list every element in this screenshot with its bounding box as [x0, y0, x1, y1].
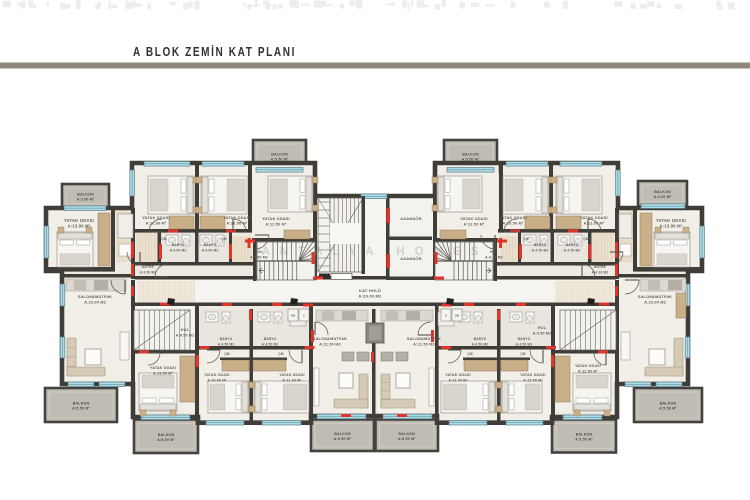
svg-text:A:21.50 M2: A:21.50 M2 — [319, 343, 341, 347]
svg-text:YATAK ODASI: YATAK ODASI — [499, 216, 526, 220]
svg-text:A:3.00 M²: A:3.00 M² — [654, 195, 672, 199]
svg-text:A:3.00 M²: A:3.00 M² — [77, 198, 95, 202]
svg-text:A:10.50 M²: A:10.50 M² — [227, 222, 249, 226]
svg-text:BALKON: BALKON — [398, 432, 415, 436]
svg-text:A:13.00 M²: A:13.00 M² — [660, 224, 683, 229]
svg-text:A:4.50 M2: A:4.50 M2 — [202, 249, 219, 253]
svg-text:A:5.50 M²: A:5.50 M² — [157, 438, 175, 442]
svg-text:BANYO: BANYO — [204, 243, 217, 247]
svg-text:HOL: HOL — [490, 250, 498, 254]
svg-text:HOL: HOL — [181, 328, 190, 332]
svg-text:A:11.00 M²: A:11.00 M² — [282, 379, 302, 383]
svg-text:A:11.00 M²: A:11.00 M² — [146, 222, 167, 226]
svg-text:BANYO: BANYO — [264, 337, 277, 341]
svg-text:A:4.50 M2: A:4.50 M2 — [262, 343, 279, 347]
svg-text:BANYO: BANYO — [220, 337, 233, 341]
svg-text:BALKON: BALKON — [158, 433, 175, 437]
svg-text:ÇM: ÇM — [583, 237, 589, 241]
svg-text:A:4.50 M2: A:4.50 M2 — [564, 249, 581, 253]
svg-text:A:23.00 M2: A:23.00 M2 — [644, 301, 666, 305]
svg-text:A:5.50 M²: A:5.50 M² — [659, 407, 677, 411]
svg-text:A:21.50 M2: A:21.50 M2 — [413, 343, 435, 347]
svg-text:A:13.00 M²: A:13.00 M² — [68, 224, 91, 229]
svg-text:A:4.50 M2: A:4.50 M2 — [170, 249, 187, 253]
svg-text:ÇM: ÇM — [520, 352, 526, 356]
svg-text:SM: SM — [291, 314, 295, 318]
svg-text:ÇM: ÇM — [224, 352, 230, 356]
svg-text:BALKON: BALKON — [462, 153, 479, 157]
svg-text:ÇM: ÇM — [523, 237, 529, 241]
svg-text:SM: SM — [455, 314, 459, 318]
svg-text:A:5.50 M²: A:5.50 M² — [334, 437, 352, 441]
svg-text:YATAK ODASI: YATAK ODASI — [580, 216, 607, 220]
svg-text:A:4.50 M2: A:4.50 M2 — [176, 334, 195, 338]
svg-text:A:12.50 M²: A:12.50 M² — [578, 370, 599, 374]
svg-text:YATAK ODASI: YATAK ODASI — [204, 373, 229, 377]
svg-text:S: S — [303, 314, 305, 318]
svg-text:A:29.00 M2: A:29.00 M2 — [359, 294, 382, 299]
svg-text:YATAK ODASI: YATAK ODASI — [142, 216, 169, 220]
svg-text:ÇM: ÇM — [278, 352, 284, 356]
svg-text:SALON&MUTFAK: SALON&MUTFAK — [638, 295, 672, 299]
svg-text:KAT HOLÜ: KAT HOLÜ — [359, 288, 381, 293]
svg-text:ANTALYA HOMES: ANTALYA HOMES — [262, 246, 489, 258]
svg-text:A:4.50 M2: A:4.50 M2 — [218, 343, 235, 347]
svg-text:BANYO: BANYO — [566, 243, 579, 247]
svg-text:A BLOK ZEMİN KAT PLANI: A BLOK ZEMİN KAT PLANI — [133, 44, 296, 59]
svg-text:A:4.50 M2: A:4.50 M2 — [472, 343, 489, 347]
svg-text:ÇM: ÇM — [161, 237, 167, 241]
svg-text:A:11.00 M²: A:11.00 M² — [584, 222, 605, 226]
svg-text:YATAK ODASI: YATAK ODASI — [279, 373, 304, 377]
svg-text:ANTRE: ANTRE — [142, 265, 154, 269]
svg-text:BALKON: BALKON — [660, 402, 677, 406]
svg-text:A:12.50 M²: A:12.50 M² — [523, 379, 543, 383]
svg-text:BALKON: BALKON — [77, 193, 94, 197]
svg-text:ANTRE: ANTRE — [594, 265, 606, 269]
svg-text:A:5.50 M²: A:5.50 M² — [72, 407, 90, 411]
svg-text:YATAK ODASI: YATAK ODASI — [445, 373, 470, 377]
svg-text:YATAK ODASI: YATAK ODASI — [656, 218, 686, 223]
svg-text:YATAK ODASI: YATAK ODASI — [64, 218, 94, 223]
svg-text:SALON&MUTFAK: SALON&MUTFAK — [78, 295, 112, 299]
svg-text:SALON&MUTFAK: SALON&MUTFAK — [407, 337, 441, 341]
svg-text:BANYO: BANYO — [534, 243, 547, 247]
svg-text:BALKON: BALKON — [654, 190, 671, 194]
svg-text:ASANSÖR: ASANSÖR — [400, 216, 421, 221]
svg-text:BALKON: BALKON — [334, 432, 351, 436]
svg-text:BANYO: BANYO — [474, 337, 487, 341]
svg-text:SALON&MUTFAK: SALON&MUTFAK — [313, 337, 347, 341]
svg-text:A:4.50 M2: A:4.50 M2 — [140, 271, 157, 275]
svg-text:A:4.20 M2: A:4.20 M2 — [592, 271, 609, 275]
svg-text:BALKON: BALKON — [271, 153, 288, 157]
svg-text:YATAK ODASI: YATAK ODASI — [262, 217, 289, 221]
svg-text:YATAK ODASI: YATAK ODASI — [575, 364, 601, 368]
svg-text:A:5.50 M²: A:5.50 M² — [575, 438, 593, 442]
svg-text:ÇM: ÇM — [221, 237, 227, 241]
svg-text:A:4.50 M2: A:4.50 M2 — [532, 249, 549, 253]
svg-text:YATAK ODASI: YATAK ODASI — [223, 216, 250, 220]
svg-text:A:12.50 M²: A:12.50 M² — [464, 223, 486, 227]
svg-text:YATAK ODASI: YATAK ODASI — [150, 366, 176, 370]
svg-text:YATAK ODASI: YATAK ODASI — [460, 217, 487, 221]
svg-text:A:23.00 M2: A:23.00 M2 — [84, 301, 106, 305]
svg-text:BALKON: BALKON — [73, 402, 90, 406]
svg-text:A:10.50 M²: A:10.50 M² — [503, 222, 525, 226]
svg-text:A:13.50 M²: A:13.50 M² — [153, 372, 174, 376]
svg-text:A:4.50 M2: A:4.50 M2 — [533, 332, 552, 336]
svg-text:A:10.50 M²: A:10.50 M² — [207, 379, 227, 383]
svg-text:BANYO: BANYO — [518, 337, 531, 341]
svg-text:A:12.50 M²: A:12.50 M² — [266, 223, 288, 227]
svg-text:A:5.50 M²: A:5.50 M² — [398, 437, 416, 441]
svg-text:A:11.00 M²: A:11.00 M² — [448, 379, 468, 383]
svg-text:BANYO: BANYO — [172, 243, 185, 247]
svg-text:YATAK ODASI: YATAK ODASI — [520, 373, 545, 377]
svg-text:ÇM: ÇM — [467, 352, 473, 356]
svg-text:HOL: HOL — [538, 326, 547, 330]
svg-text:A:4.50 M2: A:4.50 M2 — [516, 343, 533, 347]
svg-text:BALKON: BALKON — [576, 433, 593, 437]
svg-text:S: S — [445, 314, 447, 318]
